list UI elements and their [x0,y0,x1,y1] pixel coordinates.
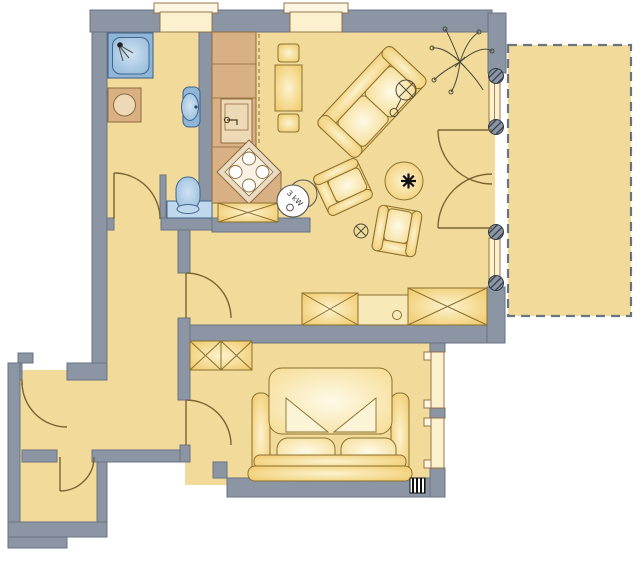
table-star-icon [401,174,416,189]
wall-bedroom-right-c [430,468,445,497]
wall-toilet-partition [160,175,166,218]
dining-chair [278,114,299,132]
sideboard [302,293,358,325]
post-icon [489,276,504,291]
wall-hall-divider-b [178,318,190,400]
window-bedroom-tab-4 [424,460,431,468]
wardrobe-bedroom [190,341,252,370]
wall-bedroom-left-jog [213,462,227,478]
post-icon [489,120,504,135]
wall-bedroom-right-b [430,408,445,418]
room-entrance-floor [15,370,190,455]
dining-table [275,65,302,111]
room-storage-floor [15,455,102,525]
window-bedroom-tab-2 [424,400,431,408]
window-bedroom-2 [431,418,444,468]
wall-storage-bottom [8,522,107,537]
wall-hall-divider-a [178,230,190,273]
wall-annex-foot [8,537,67,548]
post-icon [489,69,504,84]
window-top-2 [290,12,342,32]
coffee-table [385,162,423,200]
wall-annex-left [8,363,20,548]
shower [108,33,153,78]
wall-left [92,32,107,380]
terrace-outline [508,45,631,316]
washbasin [182,87,201,127]
kitchen-sink [221,99,252,143]
radiator [410,478,425,493]
wall-top-right [342,10,492,32]
dining-chair [278,44,299,62]
window-sill-top-1 [154,3,218,13]
wall-top-middle [212,10,290,32]
kitchen-low-cabinet [218,203,278,222]
window-sill-top-2 [284,3,348,13]
double-bed [248,368,412,481]
dining-set [275,44,302,132]
wall-bath-bottom-a [107,218,114,230]
wall-bath-bottom-b [161,218,212,230]
wall-bath-kitchen-divider [199,32,212,218]
window-bedroom-1 [431,352,444,408]
armchair [371,205,422,258]
wall-hall-bottom-b [92,450,187,462]
washing-machine [108,88,141,122]
window-bedroom-tab-1 [424,352,431,360]
bed-headboard [248,466,412,481]
post-icon [489,225,504,240]
window-bedroom-tab-3 [424,418,431,426]
wall-bedroomdoor-stub [180,445,190,462]
wall-entry-tab [18,353,33,363]
wall-topright-block [488,13,506,73]
wall-storage-right [97,462,107,522]
wall-right-block [487,287,505,343]
wardrobe-living [408,288,487,325]
wall-living-bottom [182,325,505,343]
floor-plan-page: 3 kW [0,0,640,565]
wall-top-left [90,10,160,32]
window-top-1 [160,12,212,32]
wall-hall-bottom-a [22,450,57,462]
wall-entry-right [67,363,107,380]
dresser [358,295,408,325]
floor-plan-canvas: 3 kW [0,0,640,565]
